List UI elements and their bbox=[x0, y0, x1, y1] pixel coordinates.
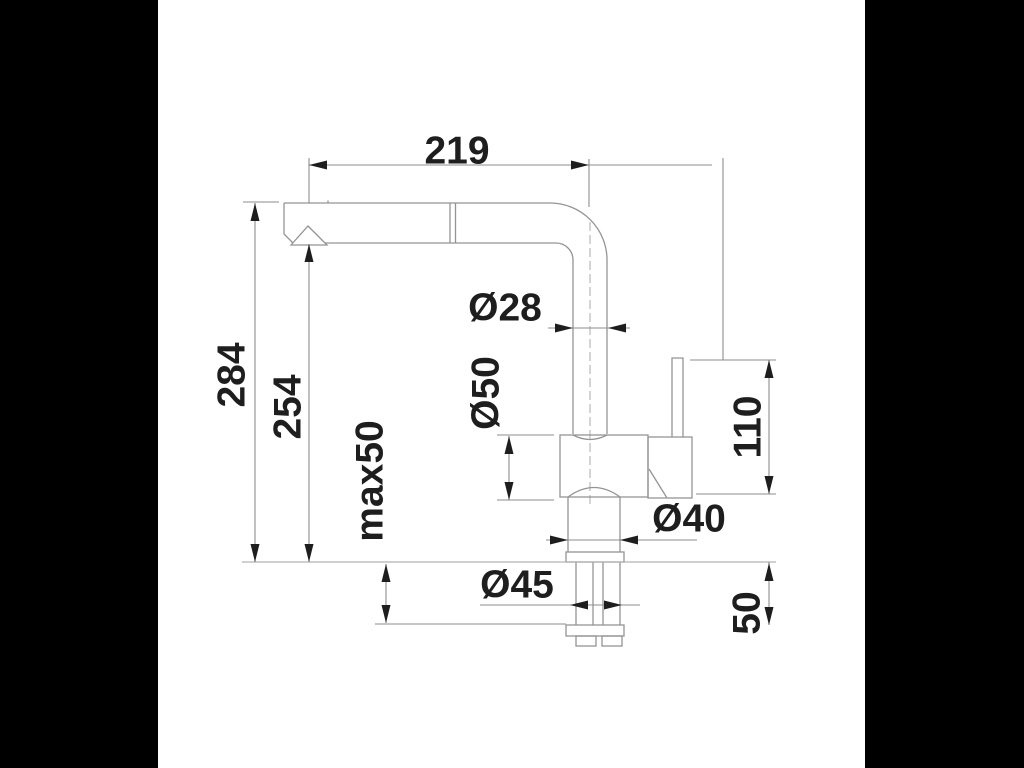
dim-284-label: 284 bbox=[211, 342, 254, 407]
dim-max50-label: max50 bbox=[349, 420, 392, 541]
dim-219-label: 219 bbox=[424, 130, 489, 173]
dim-dia40-label: Ø40 bbox=[652, 498, 726, 541]
dim-dia50-label: Ø50 bbox=[465, 356, 508, 430]
dim-dia45-label: Ø45 bbox=[480, 564, 554, 607]
faucet-dimension-diagram: 219 284 254 max50 bbox=[0, 0, 1024, 768]
dim-50-label: 50 bbox=[726, 591, 769, 634]
dim-dia28-label: Ø28 bbox=[468, 287, 542, 330]
dim-110-label: 110 bbox=[727, 396, 770, 459]
dim-254-label: 254 bbox=[267, 374, 310, 439]
technical-drawing-page: 219 284 254 max50 bbox=[0, 0, 1024, 768]
drawing-canvas bbox=[158, 0, 865, 768]
